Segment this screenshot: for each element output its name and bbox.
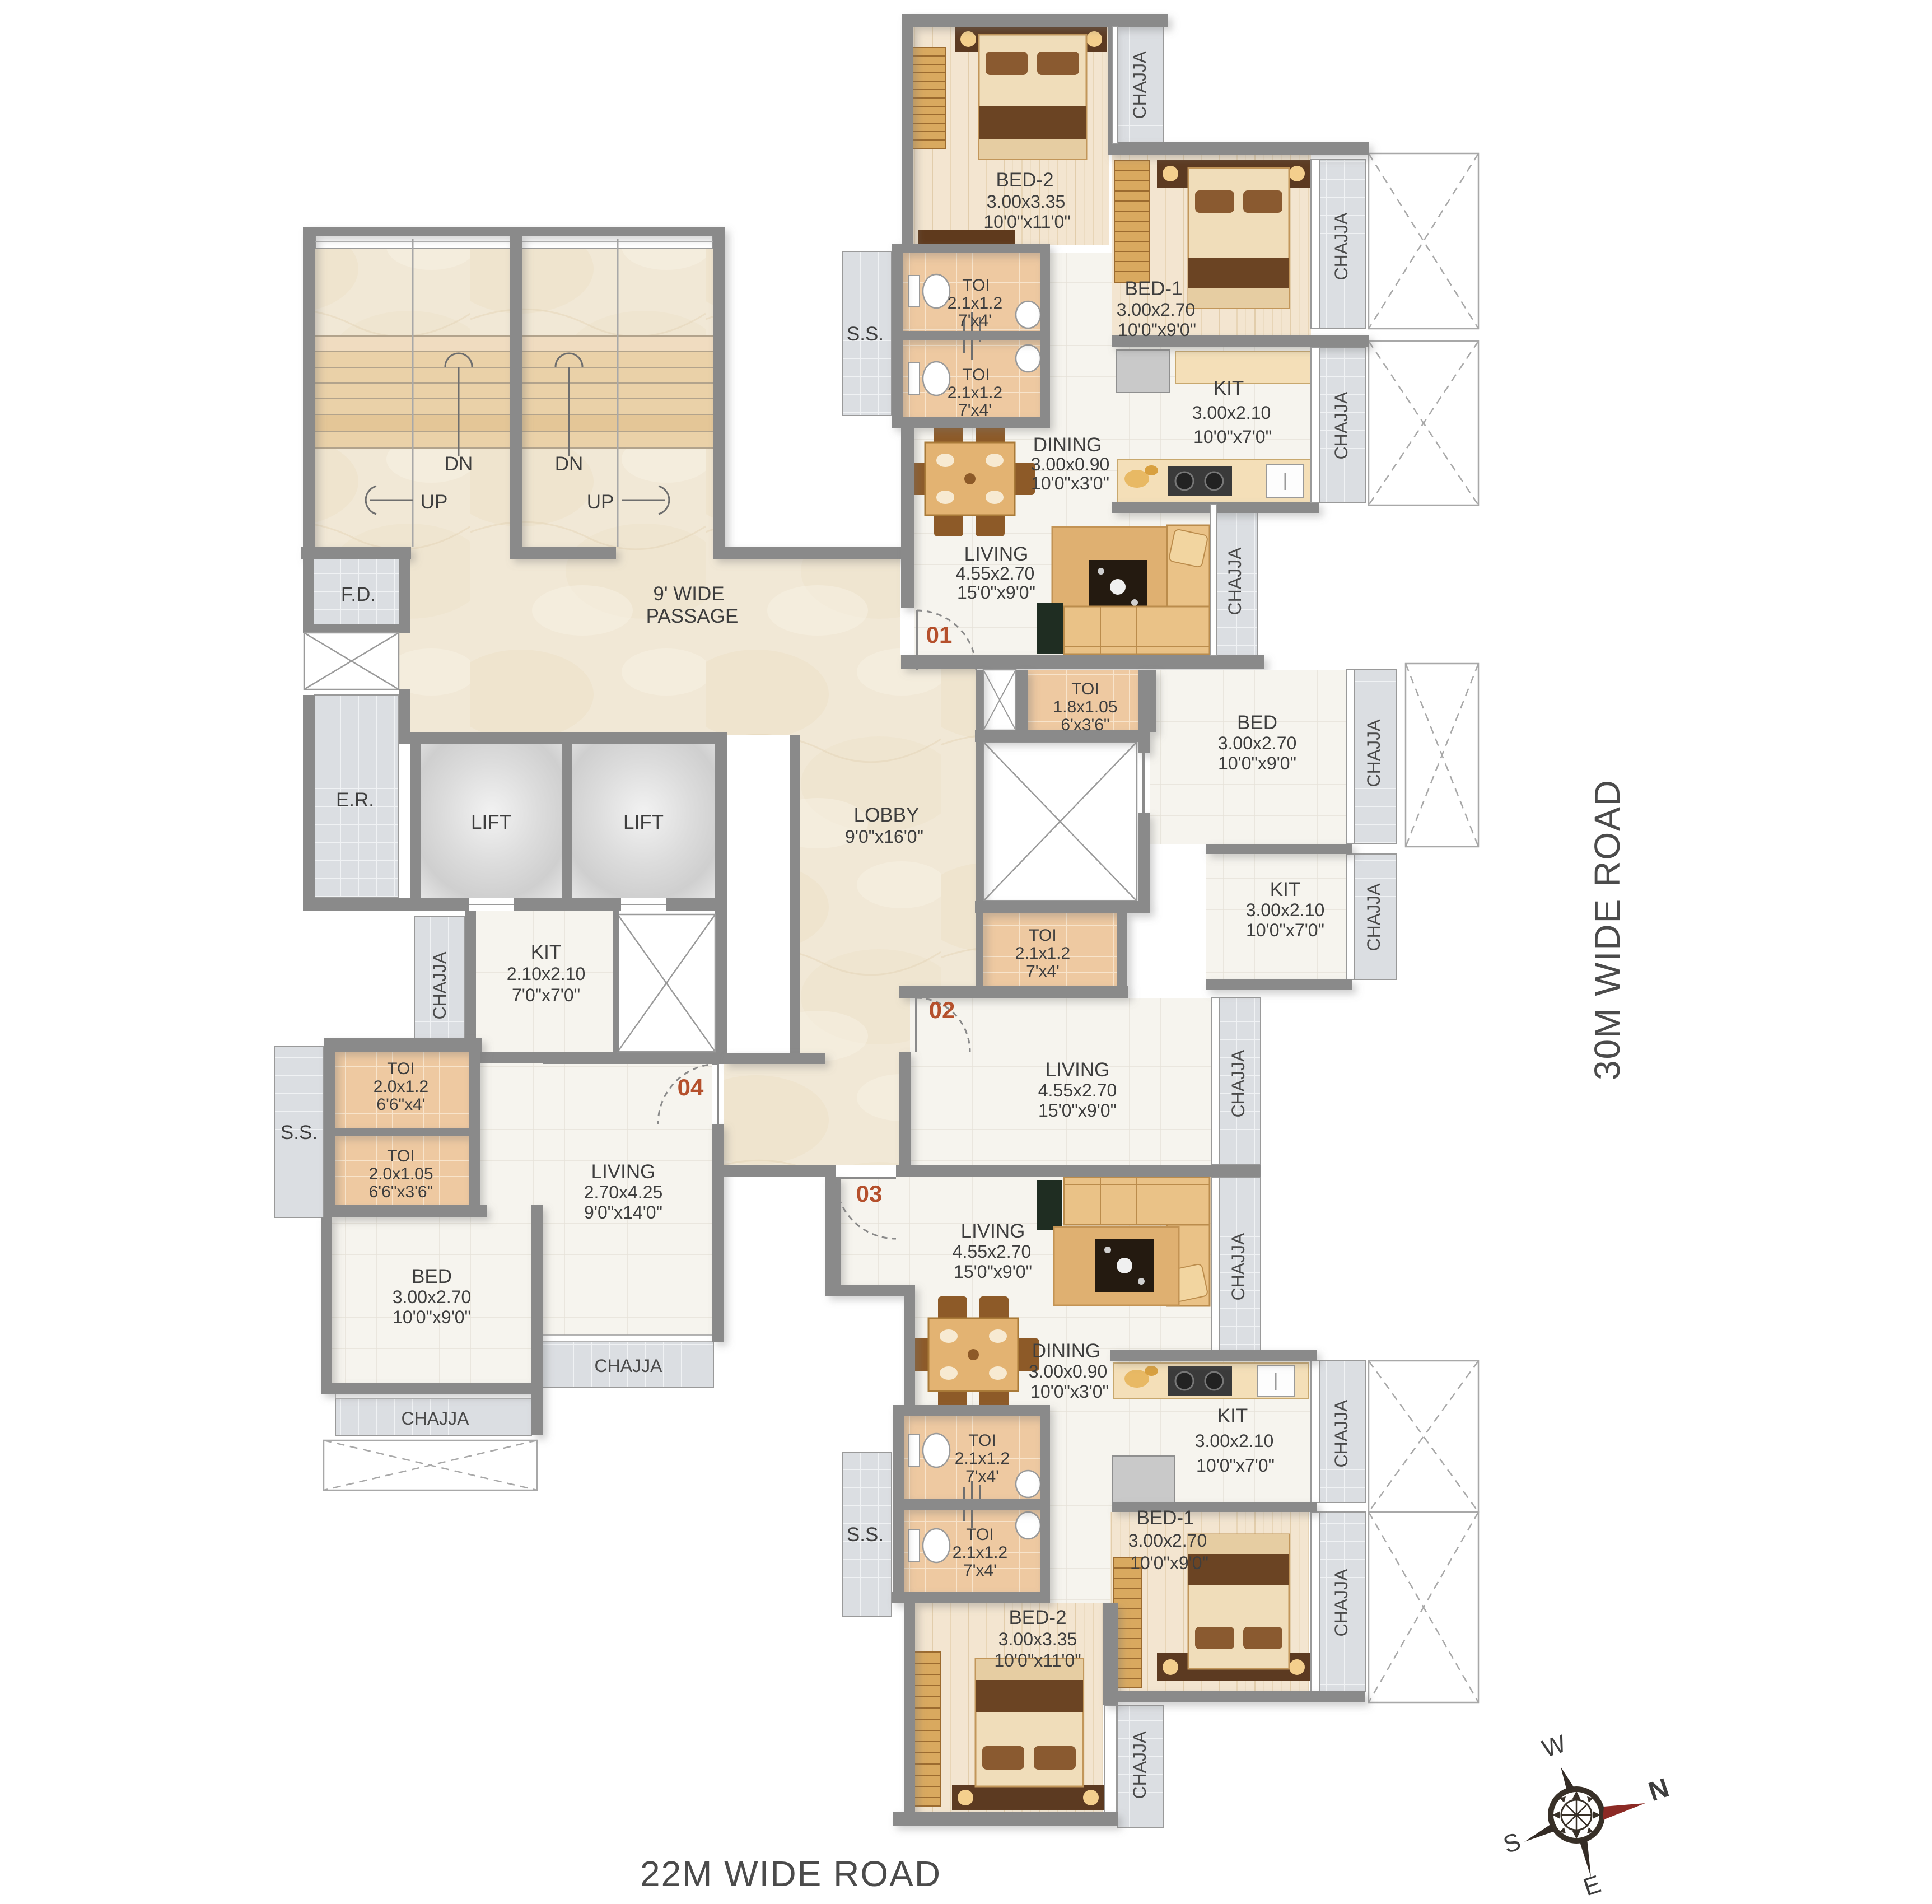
svg-text:3.00x2.10: 3.00x2.10 <box>1195 1431 1274 1451</box>
svg-text:TOI: TOI <box>387 1060 414 1078</box>
svg-text:DINING: DINING <box>1032 1340 1101 1362</box>
svg-text:10'0"x11'0": 10'0"x11'0" <box>994 1650 1081 1670</box>
svg-text:2.70x4.25: 2.70x4.25 <box>584 1182 663 1202</box>
svg-text:S.S.: S.S. <box>281 1122 318 1144</box>
svg-text:10'0"x9'0": 10'0"x9'0" <box>393 1307 471 1327</box>
svg-text:LIFT: LIFT <box>471 811 511 833</box>
svg-text:LIVING: LIVING <box>591 1161 656 1183</box>
svg-text:CHAJJA: CHAJJA <box>1225 547 1245 615</box>
svg-text:9' WIDE: 9' WIDE <box>653 583 724 605</box>
svg-text:22M WIDE ROAD: 22M WIDE ROAD <box>640 1854 941 1894</box>
svg-text:CHAJJA: CHAJJA <box>430 951 450 1020</box>
svg-text:7'x4': 7'x4' <box>963 1561 997 1580</box>
svg-text:01: 01 <box>926 622 953 648</box>
svg-text:7'x4': 7'x4' <box>1026 962 1060 981</box>
svg-text:BED-1: BED-1 <box>1124 278 1182 300</box>
svg-text:DINING: DINING <box>1033 434 1102 456</box>
svg-text:E.R.: E.R. <box>336 789 374 811</box>
svg-text:4.55x2.70: 4.55x2.70 <box>1038 1080 1117 1100</box>
svg-text:TOI: TOI <box>387 1147 414 1165</box>
svg-text:UP: UP <box>421 491 448 513</box>
svg-text:BED-1: BED-1 <box>1136 1507 1194 1529</box>
svg-text:10'0"x7'0": 10'0"x7'0" <box>1193 427 1272 447</box>
svg-text:CHAJJA: CHAJJA <box>1130 51 1150 119</box>
svg-text:CHAJJA: CHAJJA <box>1331 391 1351 460</box>
svg-text:TOI: TOI <box>966 1525 993 1544</box>
svg-text:CHAJJA: CHAJJA <box>1228 1233 1248 1301</box>
svg-text:KIT: KIT <box>1217 1405 1248 1427</box>
svg-text:02: 02 <box>929 997 955 1023</box>
svg-text:10'0"x3'0": 10'0"x3'0" <box>1030 1382 1109 1402</box>
svg-text:2.1x1.2: 2.1x1.2 <box>1015 944 1070 963</box>
svg-text:3.00x2.70: 3.00x2.70 <box>1117 300 1196 320</box>
svg-text:2.1x1.2: 2.1x1.2 <box>953 1543 1007 1562</box>
svg-text:BED-2: BED-2 <box>1009 1607 1066 1628</box>
svg-text:6'x3'6": 6'x3'6" <box>1061 716 1109 734</box>
svg-text:BED: BED <box>1237 712 1277 734</box>
svg-text:BED: BED <box>412 1266 452 1287</box>
svg-text:TOI: TOI <box>968 1431 996 1450</box>
svg-text:DN: DN <box>445 453 473 475</box>
svg-text:7'0"x7'0": 7'0"x7'0" <box>512 985 580 1005</box>
svg-text:2.0x1.05: 2.0x1.05 <box>368 1165 433 1183</box>
svg-text:4.55x2.70: 4.55x2.70 <box>953 1242 1032 1262</box>
svg-text:S.S.: S.S. <box>847 1524 884 1546</box>
svg-text:10'0"x7'0": 10'0"x7'0" <box>1246 920 1324 940</box>
svg-text:2.1x1.2: 2.1x1.2 <box>948 384 1002 402</box>
svg-text:10'0"x9'0": 10'0"x9'0" <box>1130 1553 1208 1573</box>
svg-text:15'0"x9'0": 15'0"x9'0" <box>957 582 1035 603</box>
svg-text:CHAJJA: CHAJJA <box>1130 1731 1150 1799</box>
svg-text:03: 03 <box>856 1180 883 1207</box>
svg-text:CHAJJA: CHAJJA <box>595 1356 663 1376</box>
svg-text:7'x4': 7'x4' <box>958 401 992 419</box>
svg-text:KIT: KIT <box>531 941 561 963</box>
svg-text:TOI: TOI <box>962 276 990 295</box>
svg-text:3.00x0.90: 3.00x0.90 <box>1029 1361 1108 1382</box>
svg-text:10'0"x9'0": 10'0"x9'0" <box>1118 320 1196 340</box>
svg-text:LOBBY: LOBBY <box>854 804 920 826</box>
svg-text:TOI: TOI <box>1071 680 1099 698</box>
svg-text:UP: UP <box>587 491 614 513</box>
svg-text:15'0"x9'0": 15'0"x9'0" <box>1038 1100 1117 1121</box>
svg-text:PASSAGE: PASSAGE <box>646 605 739 627</box>
svg-text:CHAJJA: CHAJJA <box>1364 719 1384 787</box>
svg-text:CHAJJA: CHAJJA <box>1331 212 1351 281</box>
svg-text:BED-2: BED-2 <box>996 169 1053 191</box>
svg-text:CHAJJA: CHAJJA <box>1331 1569 1351 1637</box>
svg-text:7'x4': 7'x4' <box>965 1467 999 1486</box>
svg-text:2.1x1.2: 2.1x1.2 <box>955 1449 1010 1468</box>
svg-text:KIT: KIT <box>1214 377 1244 399</box>
svg-text:3.00x3.35: 3.00x3.35 <box>998 1629 1077 1649</box>
svg-text:3.00x2.70: 3.00x2.70 <box>393 1287 472 1307</box>
svg-text:CHAJJA: CHAJJA <box>1331 1399 1351 1468</box>
svg-text:1.8x1.05: 1.8x1.05 <box>1053 698 1117 716</box>
svg-text:7'x4': 7'x4' <box>958 311 992 330</box>
svg-text:F.D.: F.D. <box>341 584 376 605</box>
svg-text:3.00x2.10: 3.00x2.10 <box>1246 900 1325 920</box>
svg-text:LIFT: LIFT <box>623 811 664 833</box>
svg-text:TOI: TOI <box>1029 926 1056 945</box>
svg-text:9'0"x14'0": 9'0"x14'0" <box>584 1202 662 1222</box>
svg-text:CHAJJA: CHAJJA <box>1364 883 1384 951</box>
svg-text:3.00x0.90: 3.00x0.90 <box>1031 454 1110 474</box>
svg-text:6'6"x4': 6'6"x4' <box>376 1095 425 1114</box>
svg-text:10'0"x9'0": 10'0"x9'0" <box>1218 753 1296 773</box>
svg-text:10'0"x7'0": 10'0"x7'0" <box>1196 1455 1275 1476</box>
svg-text:3.00x2.10: 3.00x2.10 <box>1192 403 1271 423</box>
svg-text:2.10x2.10: 2.10x2.10 <box>507 964 586 984</box>
svg-text:KIT: KIT <box>1270 879 1300 900</box>
svg-text:S.S.: S.S. <box>847 323 884 345</box>
svg-text:30M WIDE ROAD: 30M WIDE ROAD <box>1587 779 1627 1080</box>
svg-text:3.00x2.70: 3.00x2.70 <box>1218 733 1297 753</box>
svg-text:LIVING: LIVING <box>961 1220 1025 1242</box>
svg-text:LIVING: LIVING <box>1046 1059 1110 1081</box>
svg-text:CHAJJA: CHAJJA <box>402 1408 470 1429</box>
svg-text:3.00x3.35: 3.00x3.35 <box>987 192 1066 212</box>
svg-text:04: 04 <box>678 1074 704 1100</box>
svg-text:6'6"x3'6": 6'6"x3'6" <box>369 1183 433 1201</box>
svg-text:LIVING: LIVING <box>964 543 1029 565</box>
svg-text:10'0"x11'0": 10'0"x11'0" <box>983 212 1070 232</box>
svg-text:9'0"x16'0": 9'0"x16'0" <box>845 827 923 847</box>
svg-text:CHAJJA: CHAJJA <box>1228 1049 1248 1118</box>
svg-text:3.00x2.70: 3.00x2.70 <box>1128 1530 1207 1551</box>
svg-text:TOI: TOI <box>962 366 990 384</box>
svg-text:2.1x1.2: 2.1x1.2 <box>948 294 1002 312</box>
svg-text:2.0x1.2: 2.0x1.2 <box>374 1077 428 1096</box>
svg-text:4.55x2.70: 4.55x2.70 <box>956 563 1035 584</box>
svg-text:DN: DN <box>555 453 584 475</box>
svg-text:15'0"x9'0": 15'0"x9'0" <box>954 1262 1032 1282</box>
svg-text:10'0"x3'0": 10'0"x3'0" <box>1031 473 1109 493</box>
